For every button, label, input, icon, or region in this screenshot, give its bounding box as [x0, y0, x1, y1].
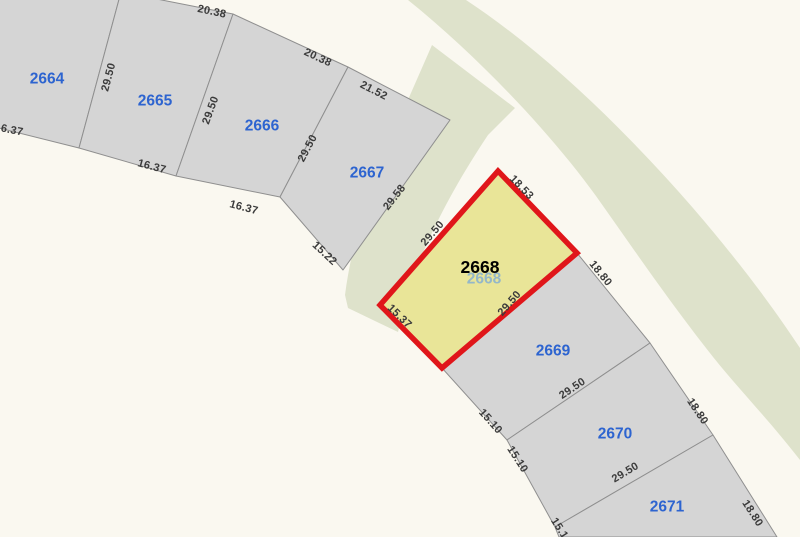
selected-parcel-label-2668: 2668: [461, 257, 500, 277]
parcel-label-2666: 2666: [245, 117, 280, 134]
parcel-label-2667: 2667: [350, 164, 384, 181]
cadastral-map[interactable]: 20.3820.3821.5229.5029.5029.5029.5816.37…: [0, 0, 800, 537]
parcel-label-2671: 2671: [650, 498, 685, 515]
map-viewport[interactable]: 20.3820.3821.5229.5029.5029.5029.5816.37…: [0, 0, 800, 537]
parcel-label-2669: 2669: [536, 342, 571, 359]
parcel-label-2664: 2664: [30, 70, 65, 87]
parcel-label-2670: 2670: [598, 425, 632, 442]
parcel-label-2665: 2665: [138, 92, 173, 109]
